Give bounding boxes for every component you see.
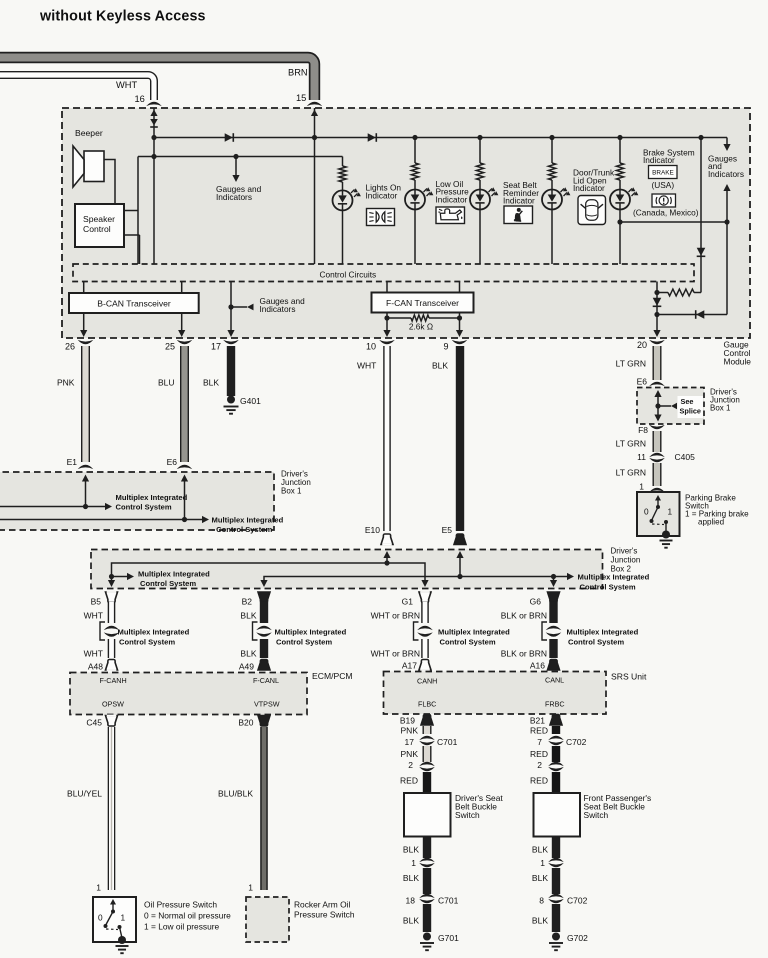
svg-text:F-CAN Transceiver: F-CAN Transceiver xyxy=(386,298,459,308)
svg-text:B5: B5 xyxy=(91,597,102,607)
svg-text:FLBC: FLBC xyxy=(418,700,436,709)
svg-text:BLK: BLK xyxy=(532,845,548,855)
svg-text:1: 1 xyxy=(411,858,416,868)
svg-text:CANL: CANL xyxy=(545,676,564,685)
svg-text:Control: Control xyxy=(83,224,111,234)
svg-text:See: See xyxy=(681,397,694,406)
svg-text:8: 8 xyxy=(539,896,544,906)
svg-text:RED: RED xyxy=(530,726,548,736)
svg-text:Control System: Control System xyxy=(580,583,636,592)
svg-text:F-CANL: F-CANL xyxy=(253,676,279,685)
svg-text:Indicator: Indicator xyxy=(366,190,398,200)
svg-text:Rocker Arm Oil: Rocker Arm Oil xyxy=(294,900,350,910)
svg-text:16: 16 xyxy=(135,94,145,104)
svg-text:Indicator: Indicator xyxy=(573,183,605,193)
svg-text:B19: B19 xyxy=(400,716,415,726)
svg-text:E6: E6 xyxy=(637,377,648,387)
svg-text:VTPSW: VTPSW xyxy=(254,700,280,709)
svg-text:WHT: WHT xyxy=(84,649,103,659)
svg-text:BLK: BLK xyxy=(203,378,219,388)
svg-text:Pressure Switch: Pressure Switch xyxy=(294,910,355,920)
svg-text:Multiplex Integrated: Multiplex Integrated xyxy=(275,628,347,637)
svg-text:E10: E10 xyxy=(365,525,380,535)
svg-text:B-CAN Transceiver: B-CAN Transceiver xyxy=(97,299,171,309)
svg-text:Multiplex Integrated: Multiplex Integrated xyxy=(116,493,188,502)
svg-text:BLK: BLK xyxy=(532,916,548,926)
svg-text:BLK: BLK xyxy=(403,916,419,926)
svg-text:Indicator: Indicator xyxy=(436,194,468,204)
svg-text:25: 25 xyxy=(165,342,175,352)
svg-text:2.6k Ω: 2.6k Ω xyxy=(409,322,433,332)
svg-text:(Canada, Mexico): (Canada, Mexico) xyxy=(633,208,699,218)
svg-text:WHT: WHT xyxy=(357,361,376,371)
svg-text:BLU/YEL: BLU/YEL xyxy=(67,789,102,799)
svg-text:17: 17 xyxy=(405,737,415,747)
svg-text:9: 9 xyxy=(443,342,448,352)
svg-text:BLK: BLK xyxy=(432,361,448,371)
svg-text:SRS Unit: SRS Unit xyxy=(611,672,647,682)
svg-text:1 = Low oil pressure: 1 = Low oil pressure xyxy=(144,922,220,932)
svg-text:BLK: BLK xyxy=(532,873,548,883)
svg-text:PNK: PNK xyxy=(401,749,419,759)
svg-text:Oil Pressure Switch: Oil Pressure Switch xyxy=(144,900,217,910)
svg-text:B20: B20 xyxy=(238,718,253,728)
svg-text:PNK: PNK xyxy=(401,726,419,736)
svg-text:FRBC: FRBC xyxy=(545,700,565,709)
svg-text:F8: F8 xyxy=(638,425,648,435)
svg-text:applied: applied xyxy=(698,518,724,527)
svg-text:Control System: Control System xyxy=(116,503,172,512)
svg-text:PNK: PNK xyxy=(57,378,75,388)
svg-text:0 = Normal oil pressure: 0 = Normal oil pressure xyxy=(144,911,231,921)
svg-text:1: 1 xyxy=(540,858,545,868)
svg-text:G702: G702 xyxy=(567,933,588,943)
svg-text:E6: E6 xyxy=(167,457,178,467)
svg-text:E5: E5 xyxy=(442,525,453,535)
svg-text:BLU: BLU xyxy=(158,378,175,388)
svg-text:18: 18 xyxy=(406,896,416,906)
svg-text:F-CANH: F-CANH xyxy=(100,676,127,685)
svg-text:Control System: Control System xyxy=(440,638,496,647)
svg-text:Box 1: Box 1 xyxy=(710,404,731,413)
svg-text:(USA): (USA) xyxy=(652,180,675,190)
svg-text:WHT: WHT xyxy=(84,611,103,621)
svg-text:LT GRN: LT GRN xyxy=(616,439,646,449)
svg-text:1: 1 xyxy=(639,482,644,492)
svg-text:ECM/PCM: ECM/PCM xyxy=(312,671,353,681)
svg-text:2: 2 xyxy=(537,760,542,770)
svg-text:CANH: CANH xyxy=(417,677,437,686)
svg-text:C702: C702 xyxy=(567,896,588,906)
svg-text:26: 26 xyxy=(65,342,75,352)
svg-text:C405: C405 xyxy=(675,452,696,462)
svg-text:C45: C45 xyxy=(86,718,102,728)
svg-text:17: 17 xyxy=(211,342,221,352)
svg-text:RED: RED xyxy=(530,776,548,786)
svg-text:without Keyless Access: without Keyless Access xyxy=(39,9,206,25)
svg-text:10: 10 xyxy=(366,342,376,352)
svg-text:G1: G1 xyxy=(402,597,414,607)
svg-text:Control System: Control System xyxy=(119,638,175,647)
svg-text:A48: A48 xyxy=(88,662,103,672)
svg-text:E1: E1 xyxy=(67,457,78,467)
svg-text:Multiplex Integrated: Multiplex Integrated xyxy=(438,628,510,637)
svg-text:Switch: Switch xyxy=(455,810,480,820)
svg-text:WHT: WHT xyxy=(116,80,137,90)
svg-text:Indicator: Indicator xyxy=(503,196,535,206)
svg-text:G401: G401 xyxy=(240,396,261,406)
svg-text:Beeper: Beeper xyxy=(75,128,103,138)
svg-text:- Control System: - Control System xyxy=(212,525,273,534)
svg-text:1: 1 xyxy=(248,883,253,893)
svg-text:Indicators: Indicators xyxy=(216,192,252,202)
svg-text:G6: G6 xyxy=(530,597,542,607)
svg-text:Control Circuits: Control Circuits xyxy=(320,270,377,280)
svg-text:20: 20 xyxy=(637,340,647,350)
svg-text:A49: A49 xyxy=(239,662,254,672)
svg-text:Multiplex Integrated: Multiplex Integrated xyxy=(567,628,639,637)
svg-text:11: 11 xyxy=(637,452,646,462)
svg-text:1: 1 xyxy=(96,883,101,893)
svg-text:WHT or BRN: WHT or BRN xyxy=(371,611,420,621)
svg-text:Control System: Control System xyxy=(140,579,196,588)
svg-text:G701: G701 xyxy=(438,933,459,943)
svg-text:Multiplex Integrated: Multiplex Integrated xyxy=(118,628,190,637)
svg-text:Multiplex Integrated: Multiplex Integrated xyxy=(212,516,284,525)
svg-text:BLK: BLK xyxy=(403,873,419,883)
svg-text:2: 2 xyxy=(408,760,413,770)
svg-text:RED: RED xyxy=(530,749,548,759)
svg-text:Driver's: Driver's xyxy=(611,547,638,556)
svg-text:Speaker: Speaker xyxy=(83,214,115,224)
svg-text:Module: Module xyxy=(724,357,752,367)
svg-text:LT GRN: LT GRN xyxy=(616,359,646,369)
svg-text:LT GRN: LT GRN xyxy=(616,468,646,478)
svg-text:1: 1 xyxy=(121,913,126,923)
svg-text:BLK: BLK xyxy=(240,649,256,659)
svg-text:0: 0 xyxy=(644,507,649,517)
svg-text:BLK: BLK xyxy=(403,845,419,855)
svg-text:Indicator: Indicator xyxy=(643,155,675,165)
svg-text:Box 1: Box 1 xyxy=(281,487,302,496)
svg-text:BRN: BRN xyxy=(288,68,308,78)
svg-text:B2: B2 xyxy=(242,597,253,607)
svg-text:BLU/BLK: BLU/BLK xyxy=(218,789,253,799)
svg-text:7: 7 xyxy=(537,737,542,747)
svg-text:C701: C701 xyxy=(438,896,459,906)
svg-text:0: 0 xyxy=(98,913,103,923)
svg-text:Switch: Switch xyxy=(584,810,609,820)
svg-text:BLK or BRN: BLK or BRN xyxy=(501,611,547,621)
svg-text:1: 1 xyxy=(668,507,673,517)
svg-text:Indicators: Indicators xyxy=(260,304,296,314)
svg-text:BLK: BLK xyxy=(240,611,256,621)
svg-text:A17: A17 xyxy=(402,661,417,671)
svg-text:15: 15 xyxy=(296,93,306,103)
svg-text:C702: C702 xyxy=(566,737,587,747)
svg-text:WHT or BRN: WHT or BRN xyxy=(371,649,420,659)
svg-text:Junction: Junction xyxy=(611,556,641,565)
svg-text:RED: RED xyxy=(400,776,418,786)
svg-text:Indicators: Indicators xyxy=(708,169,744,179)
svg-text:BLK or BRN: BLK or BRN xyxy=(501,649,547,659)
svg-text:OPSW: OPSW xyxy=(102,700,124,709)
svg-text:BRAKE: BRAKE xyxy=(652,170,674,177)
svg-text:Multiplex Integrated: Multiplex Integrated xyxy=(578,573,650,582)
svg-text:Multiplex Integrated: Multiplex Integrated xyxy=(138,570,210,579)
svg-text:C701: C701 xyxy=(437,737,458,747)
svg-text:Splice: Splice xyxy=(680,407,702,416)
svg-text:Control System: Control System xyxy=(276,638,332,647)
svg-text:B21: B21 xyxy=(530,716,545,726)
svg-text:A16: A16 xyxy=(530,661,545,671)
svg-text:Control System: Control System xyxy=(568,638,624,647)
